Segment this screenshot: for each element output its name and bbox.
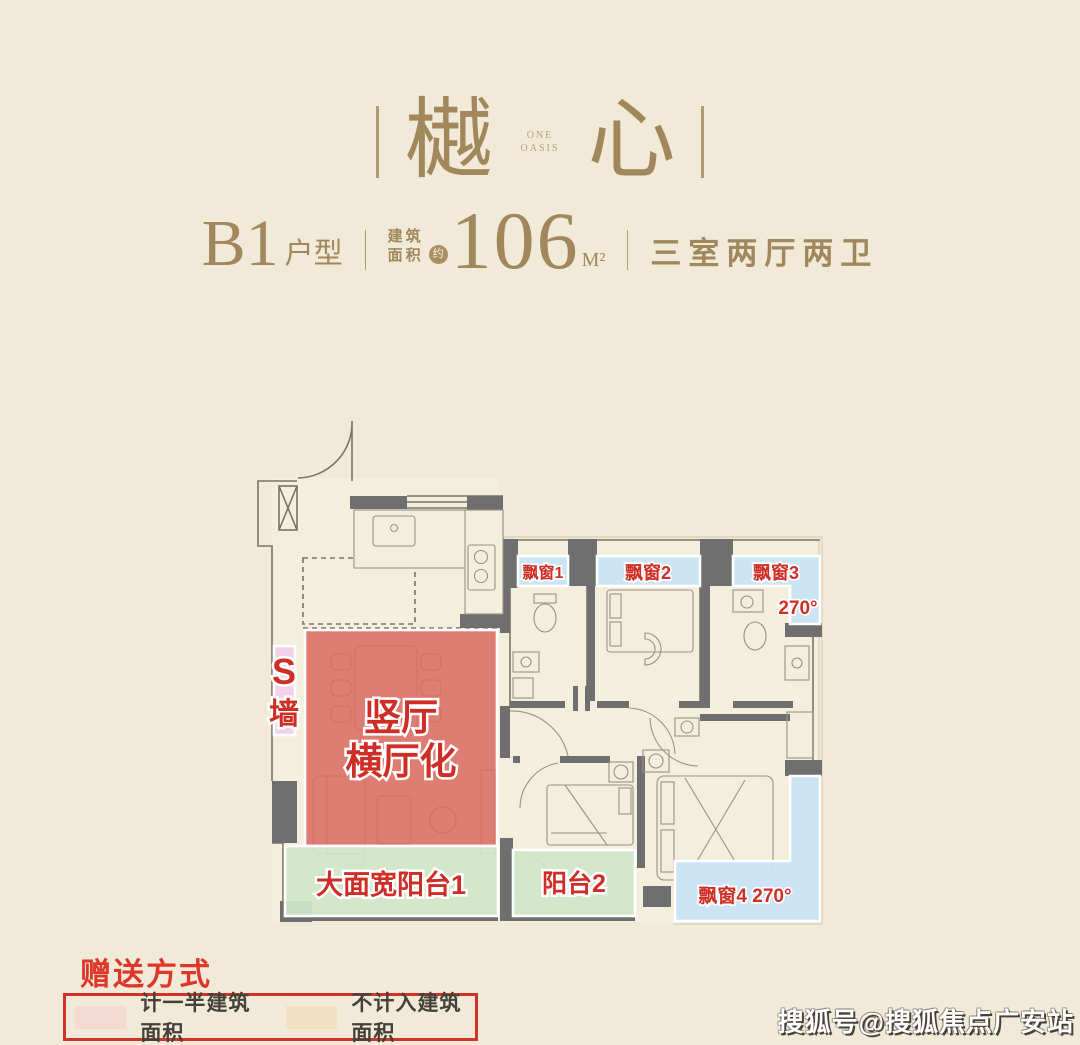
spec-divider-1 [365, 230, 366, 270]
bay-window-4-label: 飘窗4 270° [698, 884, 791, 907]
area-label: 建筑 面积 [388, 228, 424, 266]
legend-item-not-counted: 不计入建筑面积 [286, 987, 475, 1045]
unit-spec-line: B1 户型 建筑 面积 约 106 M² 三室两厅两卫 [0, 198, 1080, 274]
balcony-1-label: 大面宽阳台1 [316, 869, 466, 900]
logo-char-right: 心 [587, 97, 675, 187]
bay-window-3-label: 飘窗3 [753, 562, 799, 583]
approx-badge: 约 [429, 245, 448, 264]
legend-label-not-counted: 不计入建筑面积 [351, 987, 475, 1045]
spec-divider-2 [627, 230, 628, 270]
legend-swatch-half-area [75, 1006, 126, 1029]
floor-plan: 飘窗1 飘窗2 飘窗3 270° 飘窗4 270° S 墙 竖厅 横厅化 大面宽… [255, 418, 825, 945]
area-unit: M² [582, 246, 606, 274]
bay-window-1-label: 飘窗1 [523, 563, 564, 582]
watermark: 搜狐号@搜狐焦点广安站 [778, 1002, 1074, 1039]
legend-label-half-area: 计一半建筑面积 [140, 987, 264, 1045]
logo-char-left: 樾 [405, 97, 493, 187]
poster-canvas: 樾 ONE OASIS 心 B1 户型 建筑 面积 约 106 M² 三室两厅两… [0, 0, 1080, 1045]
living-area-overlay [305, 630, 497, 846]
logo-subtext: ONE OASIS [521, 130, 560, 154]
area-label-line1: 建筑 [388, 228, 424, 247]
logo-subtext-line2: OASIS [521, 143, 560, 154]
living-area-label-line1: 竖厅 [364, 697, 438, 738]
unit-model: B1 [202, 214, 279, 274]
s-wall-label-line1: S [272, 651, 296, 692]
bay-window-3-angle: 270° [778, 598, 817, 619]
s-wall-label-line2: 墙 [269, 698, 299, 731]
legend-swatch-not-counted [286, 1006, 337, 1029]
bay-window-2-label: 飘窗2 [625, 562, 671, 583]
logo-divider-right [701, 106, 704, 178]
balcony-2-label: 阳台2 [542, 869, 606, 898]
brand-logo: 樾 ONE OASIS 心 [0, 92, 1080, 192]
logo-subtext-line1: ONE [527, 130, 554, 141]
area-value: 106 [451, 208, 580, 274]
legend-item-half-area: 计一半建筑面积 [75, 987, 264, 1045]
unit-model-suffix: 户型 [285, 234, 343, 274]
living-area-label-line2: 横厅化 [346, 741, 457, 782]
logo-divider-left [376, 106, 379, 178]
legend-box: 计一半建筑面积 不计入建筑面积 [63, 993, 478, 1041]
area-label-line2: 面积 [388, 247, 424, 266]
room-layout-desc: 三室两厅两卫 [650, 234, 878, 274]
